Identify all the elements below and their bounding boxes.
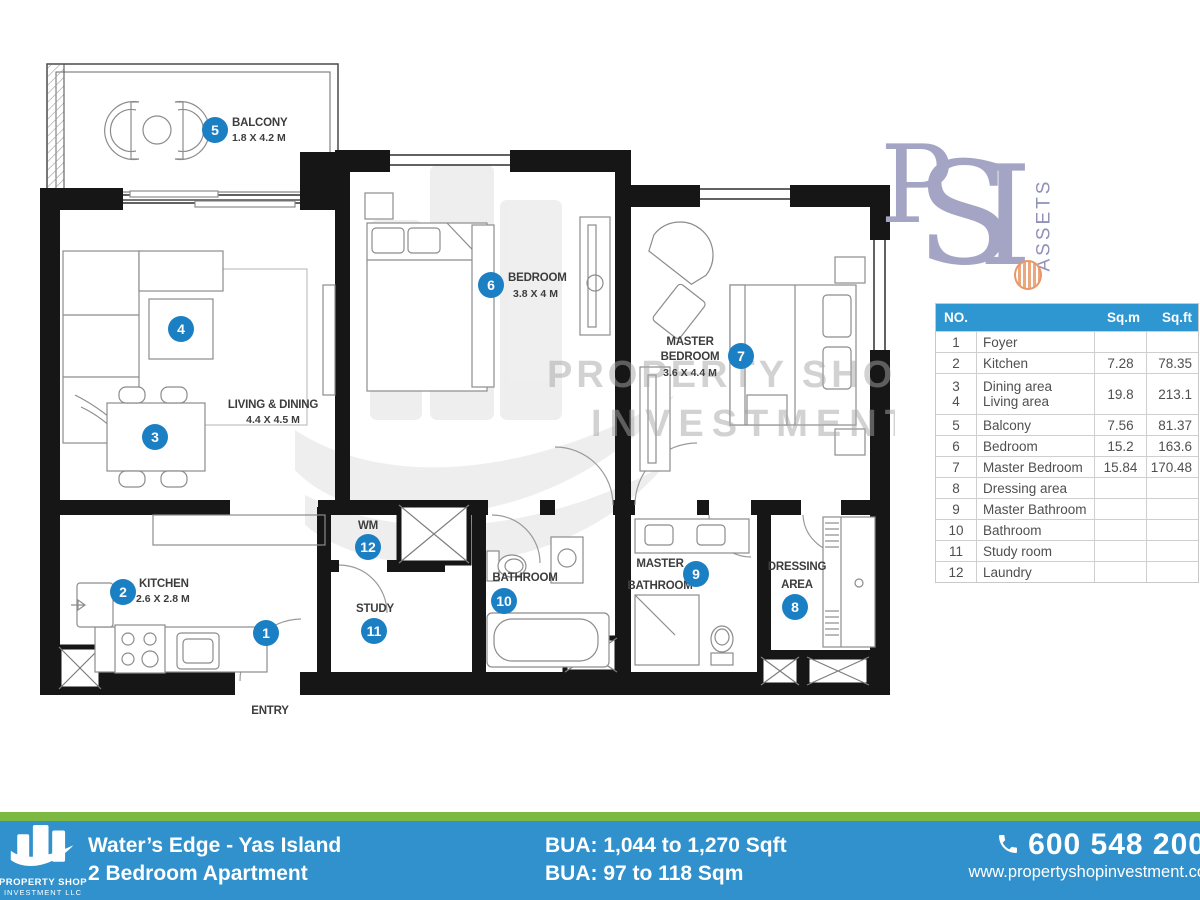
table-row: 6 Bedroom 15.2 163.6 (936, 435, 1198, 456)
svg-text:BATHROOM: BATHROOM (627, 580, 692, 592)
svg-text:8: 8 (791, 599, 799, 615)
marker-bathroom: BATHROOM 10 (491, 572, 558, 614)
footer-blue-bar: PROPERTY SHOP INVESTMENT LLC Water’s Edg… (0, 821, 1200, 900)
phone-icon (996, 832, 1020, 856)
dressing-furniture (823, 517, 875, 647)
svg-text:6: 6 (487, 277, 495, 293)
svg-text:1.8 X 4.2 M: 1.8 X 4.2 M (232, 132, 286, 144)
svg-text:4.4 X 4.5 M: 4.4 X 4.5 M (246, 414, 300, 426)
contact-block: 600 548 200 www.propertyshopinvestment.c… (968, 828, 1200, 882)
floorplan-flyer: { "watermark": { "line1": "PROPERTY SHOP… (0, 0, 1200, 900)
footer-logo-line1: PROPERTY SHOP (0, 877, 98, 888)
svg-text:AREA: AREA (781, 579, 813, 591)
svg-text:12: 12 (360, 539, 376, 555)
table-row: 2 Kitchen 7.28 78.35 (936, 352, 1198, 373)
table-row: 9 Master Bathroom (936, 498, 1198, 519)
project-name: Water’s Edge - Yas Island (88, 832, 341, 860)
svg-text:WM: WM (358, 520, 378, 532)
area-legend-table: NO. Sq.m Sq.ft 1 Foyer 2 Kitchen 7.28 78… (935, 303, 1199, 583)
psi-globe-icon (1014, 260, 1042, 290)
svg-text:1: 1 (262, 625, 270, 641)
svg-text:BEDROOM: BEDROOM (661, 351, 720, 363)
svg-text:DRESSING: DRESSING (768, 561, 827, 573)
master-bathroom-furniture (635, 519, 749, 665)
marker-kitchen: 2 KITCHEN 2.6 X 2.8 M (110, 578, 190, 605)
svg-text:2: 2 (119, 584, 127, 600)
marker-study: STUDY 11 (356, 603, 395, 644)
table-row: 12 Laundry (936, 561, 1198, 582)
svg-text:5: 5 (211, 122, 219, 138)
svg-text:LIVING & DINING: LIVING & DINING (228, 399, 319, 411)
header-sqm: Sq.m (1094, 310, 1146, 325)
svg-text:3.6 X 4.4 M: 3.6 X 4.4 M (663, 367, 717, 379)
svg-text:BEDROOM: BEDROOM (508, 272, 567, 284)
svg-text:4: 4 (177, 321, 185, 337)
kitchen-furniture (71, 515, 325, 673)
phone-number: 600 548 200 (1028, 828, 1200, 861)
table-row-merged: 3 4 Dining area Living area 19.8 213.1 (936, 373, 1198, 414)
table-row: 8 Dressing area (936, 477, 1198, 498)
svg-text:MASTER: MASTER (666, 336, 714, 348)
project-title: Water’s Edge - Yas Island 2 Bedroom Apar… (88, 832, 341, 888)
balcony-furniture (105, 102, 210, 160)
table-row: 1 Foyer (936, 331, 1198, 352)
svg-text:STUDY: STUDY (356, 603, 395, 615)
marker-master-bathroom: MASTER BATHROOM 9 (627, 558, 709, 592)
marker-balcony: 5 BALCONY 1.8 X 4.2 M (202, 117, 288, 144)
svg-text:KITCHEN: KITCHEN (139, 578, 189, 590)
svg-text:2.6 X 2.8 M: 2.6 X 2.8 M (136, 593, 190, 605)
psi-building-icon (8, 825, 78, 871)
bua-sqft: BUA: 1,044 to 1,270 Sqft (545, 832, 787, 860)
svg-text:11: 11 (367, 623, 382, 639)
bua-block: BUA: 1,044 to 1,270 Sqft BUA: 97 to 118 … (545, 832, 787, 888)
floor-plan: PROPERTY SHOP INVESTMENT L 5 BALCONY 1.8… (35, 55, 895, 715)
table-header: NO. Sq.m Sq.ft (936, 304, 1198, 331)
svg-text:BALCONY: BALCONY (232, 117, 288, 129)
website-url: www.propertyshopinvestment.co (968, 863, 1200, 882)
svg-text:3: 3 (151, 429, 159, 445)
balcony-outline (47, 64, 338, 200)
svg-text:10: 10 (496, 593, 512, 609)
watermark-line1: PROPERTY SHOP (547, 354, 895, 396)
svg-text:7: 7 (737, 348, 745, 364)
bua-sqm: BUA: 97 to 118 Sqm (545, 860, 787, 888)
svg-text:MASTER: MASTER (636, 558, 684, 570)
footer-logo-line2: INVESTMENT LLC (0, 888, 98, 897)
marker-dressing: DRESSING AREA 8 (768, 561, 827, 620)
marker-wm: WM 12 (355, 520, 381, 560)
watermark-line2: INVESTMENT L (591, 403, 895, 445)
svg-text:BATHROOM: BATHROOM (492, 572, 557, 584)
footer-bar: PROPERTY SHOP INVESTMENT LLC Water’s Edg… (0, 812, 1200, 900)
unit-type: 2 Bedroom Apartment (88, 860, 341, 888)
psi-footer-logo: PROPERTY SHOP INVESTMENT LLC (0, 825, 98, 897)
table-row: 7 Master Bedroom 15.84 170.48 (936, 456, 1198, 477)
living-furniture (63, 251, 335, 487)
table-row: 10 Bathroom (936, 519, 1198, 540)
footer-green-strip (0, 812, 1200, 821)
header-no: NO. (936, 310, 976, 325)
table-row: 11 Study room (936, 540, 1198, 561)
header-sqft: Sq.ft (1146, 310, 1198, 325)
svg-text:3.8 X 4 M: 3.8 X 4 M (513, 288, 558, 300)
table-row: 5 Balcony 7.56 81.37 (936, 414, 1198, 435)
svg-text:ENTRY: ENTRY (251, 705, 289, 715)
svg-text:9: 9 (692, 566, 700, 582)
psi-assets-label: ASSETS (1033, 179, 1055, 272)
phone-row: 600 548 200 (968, 828, 1200, 862)
